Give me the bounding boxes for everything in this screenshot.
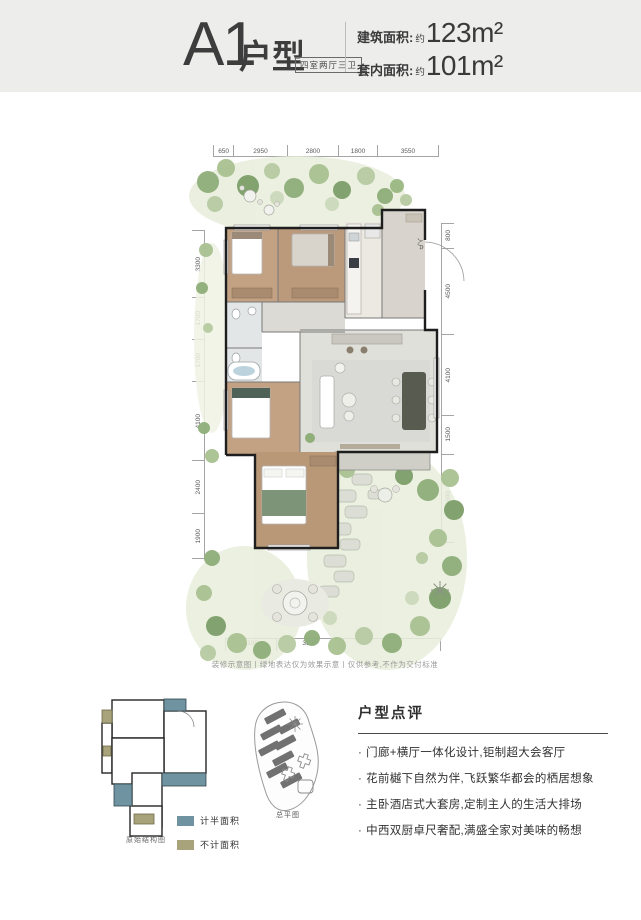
disclaimer-text: 装修示意图丨绿地表达仅为效果示意丨仅供参考,不作为交付标准: [150, 659, 500, 670]
review-list: ·门廊+横厅一体化设计,钜制超大会客厅 ·花前樾下自然为伴,飞跃繁华都会的栖居想…: [358, 744, 613, 838]
half-area-label: 计半面积: [200, 814, 240, 827]
review-bullet: ·花前樾下自然为伴,飞跃繁华都会的栖居想象: [358, 770, 613, 786]
inner-area-approx: 约: [415, 64, 425, 78]
built-area-label: 建筑面积:: [357, 27, 413, 46]
parasol-icon: [431, 581, 449, 599]
inner-area-label: 套内面积:: [357, 60, 413, 79]
legend-row: 不计面积: [177, 838, 240, 851]
excluded-area-swatch: [177, 840, 194, 850]
floorplan-rendering: 入户: [182, 138, 467, 678]
layout-tag: 四室两厅三卫: [295, 57, 362, 73]
siteplan-caption: 总平图: [245, 810, 331, 820]
built-area-value: 123m²: [426, 17, 503, 49]
inner-area-row: 套内面积: 约 101m²: [357, 50, 503, 80]
area-legend: 计半面积 不计面积: [177, 814, 240, 851]
half-area-swatch: [177, 816, 194, 826]
review-bullet: ·门廊+横厅一体化设计,钜制超大会客厅: [358, 744, 613, 760]
floorplan-svg: 入户: [182, 138, 467, 678]
entry-label: 入户: [416, 238, 424, 250]
bullet-marker: ·: [358, 825, 362, 837]
review-divider: [358, 733, 608, 734]
site-plan: [243, 696, 338, 814]
review-bullet: ·中西双厨卓尺奢配,满盛全家对美味的畅想: [358, 822, 613, 838]
review-section: 户型点评 ·门廊+横厅一体化设计,钜制超大会客厅 ·花前樾下自然为伴,飞跃繁华都…: [358, 702, 613, 848]
brochure-page: A1 户型 四室两厅三卫 建筑面积: 约 123m² 套内面积: 约 101m²…: [0, 0, 641, 920]
header-divider: [345, 22, 346, 72]
built-area-row: 建筑面积: 约 123m²: [357, 17, 503, 47]
header-band: A1 户型 四室两厅三卫 建筑面积: 约 123m² 套内面积: 约 101m²: [0, 0, 641, 92]
bullet-marker: ·: [358, 773, 362, 785]
inner-area-value: 101m²: [426, 50, 503, 82]
legend-row: 计半面积: [177, 814, 240, 827]
bullet-marker: ·: [358, 747, 362, 759]
review-bullet: ·主卧酒店式大套房,定制主人的生活大排场: [358, 796, 613, 812]
built-area-approx: 约: [415, 31, 425, 45]
area-metrics: 建筑面积: 约 123m² 套内面积: 约 101m²: [357, 17, 503, 80]
review-title: 户型点评: [358, 702, 613, 723]
excluded-area-label: 不计面积: [200, 838, 240, 851]
bullet-marker: ·: [358, 799, 362, 811]
